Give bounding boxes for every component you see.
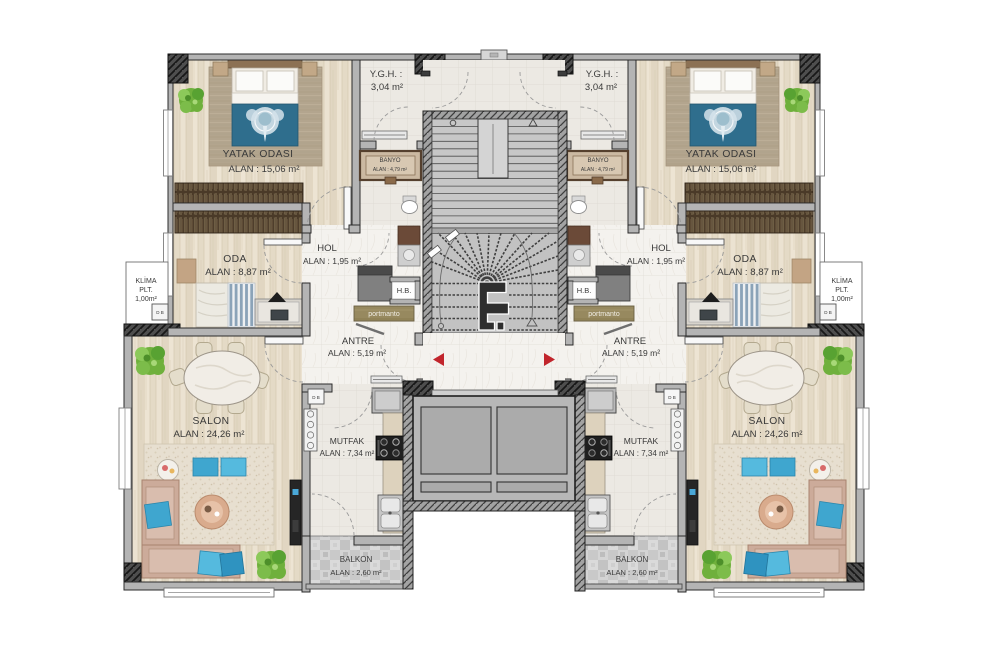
svg-text:ALAN : 5,19 m²: ALAN : 5,19 m²	[328, 348, 386, 358]
svg-text:D B: D B	[156, 310, 164, 315]
svg-text:ALAN : 15,06 m²: ALAN : 15,06 m²	[229, 164, 301, 175]
svg-text:PLT.: PLT.	[139, 287, 153, 294]
svg-text:ALAN : 1,95 m²: ALAN : 1,95 m²	[303, 256, 361, 266]
svg-text:KLİMA: KLİMA	[135, 276, 156, 285]
svg-text:ALAN : 1,95 m²: ALAN : 1,95 m²	[627, 256, 685, 266]
svg-text:Y.G.H. :: Y.G.H. :	[370, 69, 403, 80]
svg-text:D B: D B	[312, 395, 320, 400]
svg-text:H.B.: H.B.	[577, 286, 592, 295]
svg-text:HOL: HOL	[651, 243, 671, 254]
svg-text:BANYO: BANYO	[587, 158, 608, 164]
svg-text:1,00m²: 1,00m²	[831, 296, 853, 303]
svg-text:ALAN : 7,34 m²: ALAN : 7,34 m²	[614, 449, 669, 458]
svg-text:ALAN : 7,34 m²: ALAN : 7,34 m²	[320, 449, 375, 458]
svg-text:MUTFAK: MUTFAK	[624, 436, 659, 446]
svg-text:ALAN : 2,60 m²: ALAN : 2,60 m²	[606, 568, 658, 577]
svg-text:3,04 m²: 3,04 m²	[371, 82, 403, 93]
svg-text:ALAN : 24,26 m²: ALAN : 24,26 m²	[732, 429, 804, 440]
svg-text:ANTRE: ANTRE	[342, 336, 374, 347]
svg-text:HOL: HOL	[317, 243, 337, 254]
svg-text:ALAN : 4,79 m²: ALAN : 4,79 m²	[581, 167, 616, 173]
svg-text:ANTRE: ANTRE	[614, 336, 646, 347]
svg-text:D B: D B	[824, 310, 832, 315]
svg-text:ODA: ODA	[733, 254, 757, 265]
svg-text:portmanto: portmanto	[588, 311, 620, 318]
svg-text:YATAK ODASI: YATAK ODASI	[223, 149, 294, 160]
svg-text:H.B.: H.B.	[397, 286, 412, 295]
svg-text:ALAN : 15,06 m²: ALAN : 15,06 m²	[686, 164, 758, 175]
svg-text:ALAN : 24,26 m²: ALAN : 24,26 m²	[174, 429, 246, 440]
svg-text:SALON: SALON	[193, 416, 230, 427]
svg-text:BANYO: BANYO	[379, 158, 400, 164]
svg-text:PLT.: PLT.	[835, 287, 849, 294]
svg-text:SALON: SALON	[749, 416, 786, 427]
svg-text:Y.G.H. :: Y.G.H. :	[586, 69, 619, 80]
svg-text:ALAN : 5,19 m²: ALAN : 5,19 m²	[602, 348, 660, 358]
svg-text:MUTFAK: MUTFAK	[330, 436, 365, 446]
svg-text:portmanto: portmanto	[368, 311, 400, 318]
svg-text:3,04 m²: 3,04 m²	[585, 82, 617, 93]
svg-text:1,00m²: 1,00m²	[135, 296, 157, 303]
svg-text:YATAK ODASI: YATAK ODASI	[686, 149, 757, 160]
svg-text:ODA: ODA	[223, 254, 247, 265]
svg-text:BALKON: BALKON	[340, 555, 373, 564]
svg-text:ALAN : 8,87 m²: ALAN : 8,87 m²	[205, 267, 271, 278]
svg-text:ALAN : 2,60 m²: ALAN : 2,60 m²	[330, 568, 382, 577]
svg-text:ALAN : 4,79 m²: ALAN : 4,79 m²	[373, 167, 408, 173]
svg-text:KLİMA: KLİMA	[831, 276, 852, 285]
svg-text:BALKON: BALKON	[616, 555, 649, 564]
svg-text:D B: D B	[668, 395, 676, 400]
svg-text:ALAN : 8,87 m²: ALAN : 8,87 m²	[717, 267, 783, 278]
